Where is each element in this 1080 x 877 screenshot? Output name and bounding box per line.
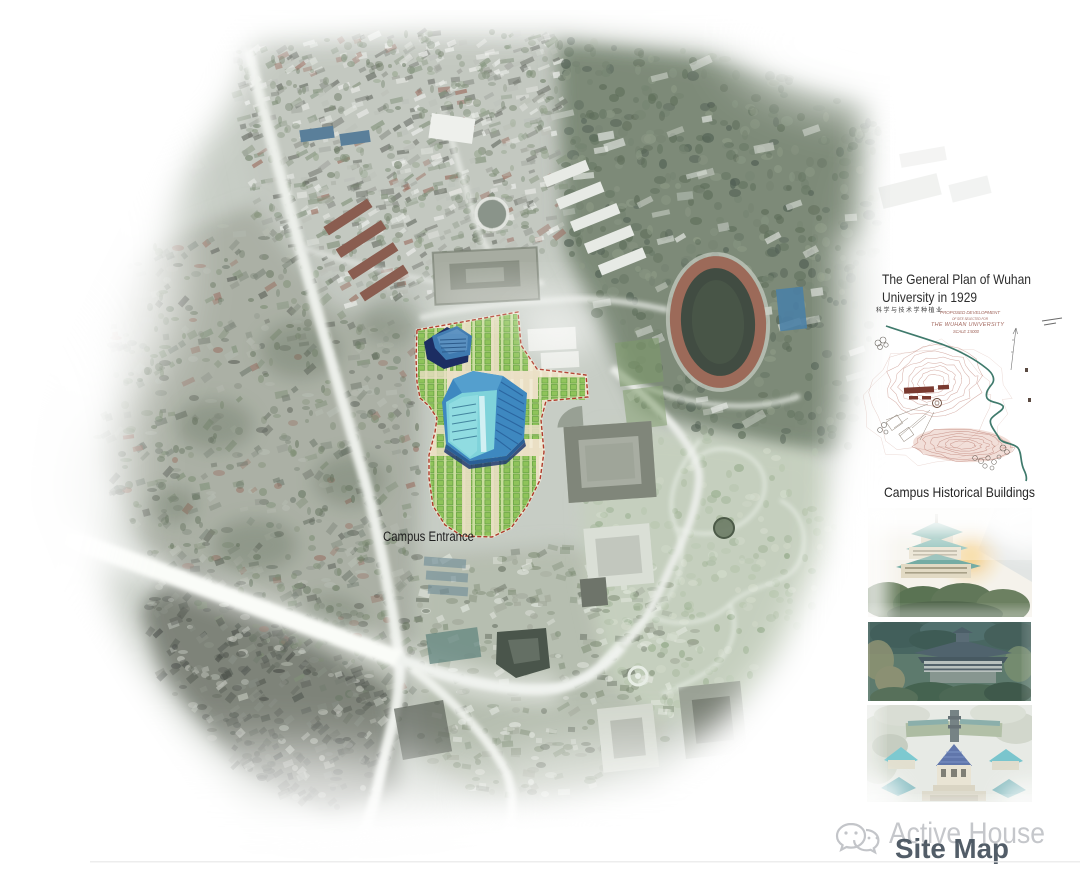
svg-text:Site Map: Site Map (895, 833, 1009, 864)
svg-text:THE WUHAN UNIVERSITY: THE WUHAN UNIVERSITY (931, 322, 1004, 328)
svg-text:Campus Entrance: Campus Entrance (383, 529, 474, 544)
svg-text:科学与技术学种植业: 科学与技术学种植业 (876, 306, 944, 314)
svg-text:PROPOSED DEVELOPMENT: PROPOSED DEVELOPMENT (940, 310, 1001, 315)
svg-text:OF SITE SELECTED FOR: OF SITE SELECTED FOR (952, 317, 989, 321)
svg-text:Campus Historical Buildings: Campus Historical Buildings (884, 484, 1035, 500)
svg-text:The General Plan of Wuhan: The General Plan of Wuhan (882, 271, 1031, 287)
svg-text:University in 1929: University in 1929 (882, 289, 977, 305)
svg-text:SCALE 1:5000: SCALE 1:5000 (953, 329, 980, 334)
